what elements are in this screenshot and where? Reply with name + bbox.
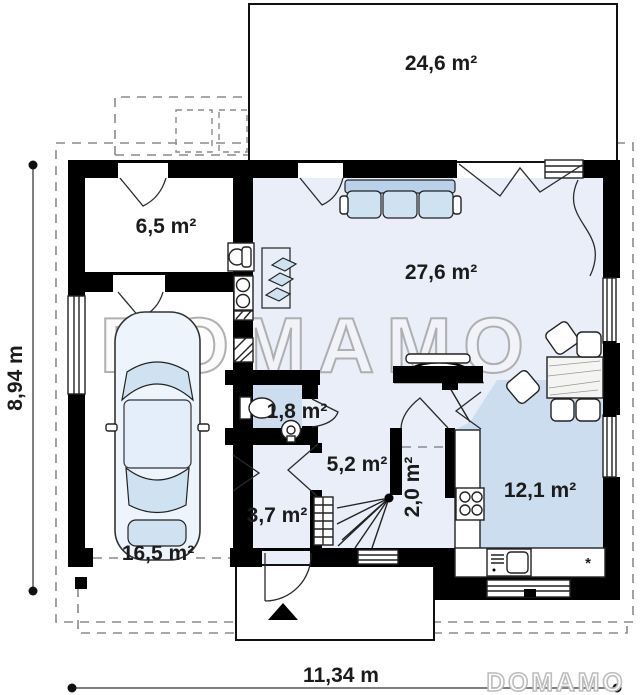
label-dishwasher-mark: * <box>585 555 591 572</box>
entrance-steps <box>352 548 404 565</box>
chair-4 <box>551 399 574 421</box>
wall-top-2 <box>168 160 298 178</box>
roof-window-2 <box>219 110 247 152</box>
wall-left-2 <box>68 394 85 548</box>
dim-width-label: 11,34 m <box>303 664 379 687</box>
wall-right-1 <box>603 160 620 278</box>
chair-2 <box>577 332 601 357</box>
wall-bottom-jog <box>434 548 455 600</box>
washer-stack <box>234 276 253 320</box>
floor-plan: DOMAMO <box>0 0 640 695</box>
wall-tech-garage-2 <box>165 272 233 292</box>
label-wardrobe: 3,7 m² <box>247 504 308 527</box>
lintel-entrance <box>262 548 310 551</box>
chair-5 <box>576 399 600 421</box>
chimney-flue <box>234 338 253 362</box>
label-terrace: 24,6 m² <box>405 52 477 75</box>
carport-post <box>75 577 87 589</box>
wall-wardrobe-stub <box>310 443 322 453</box>
roof-window-1 <box>176 110 212 152</box>
label-kitchen: 12,1 m² <box>504 479 576 502</box>
label-bath: 1,8 m² <box>267 400 328 423</box>
wall-bath-right-1 <box>302 385 318 399</box>
wall-bath-right-2 <box>302 426 318 445</box>
label-garage: 16,5 m² <box>122 542 194 565</box>
wall-top-3 <box>343 160 457 178</box>
wall-left-pier <box>68 548 93 567</box>
logo-text: DOMAMO <box>486 667 625 695</box>
lintel-tech-door <box>118 160 168 163</box>
wall-divider <box>233 178 253 548</box>
floor-plan-canvas: DOMAMO <box>0 0 640 695</box>
label-living: 27,6 m² <box>405 261 477 284</box>
window-dining-right <box>603 278 616 345</box>
dim-height-label: 8,94 m <box>4 345 27 410</box>
kitchen-sink <box>487 549 531 576</box>
lintel-living-door <box>298 160 343 163</box>
sofa <box>340 180 461 218</box>
lintel-garage-door <box>113 272 165 275</box>
window-living-top <box>545 160 583 178</box>
wall-tech-garage-1 <box>68 272 113 292</box>
wall-right-2 <box>603 343 620 415</box>
wall-bath-top <box>225 370 320 385</box>
window-garage-left <box>68 296 85 394</box>
window-kitchen-right <box>603 413 616 477</box>
car <box>106 312 209 560</box>
window-kitchen-bottom <box>487 580 570 597</box>
wall-pantry-right <box>445 428 455 498</box>
label-pantry: 2,0 m² <box>401 457 424 518</box>
terrace-outline <box>249 4 617 162</box>
stair-newel <box>385 494 394 503</box>
porch-outline <box>236 565 434 640</box>
label-tech: 6,5 m² <box>136 215 197 238</box>
wall-bottom-1 <box>230 548 262 567</box>
label-hall: 5,2 m² <box>327 453 388 476</box>
boiler <box>228 243 254 271</box>
